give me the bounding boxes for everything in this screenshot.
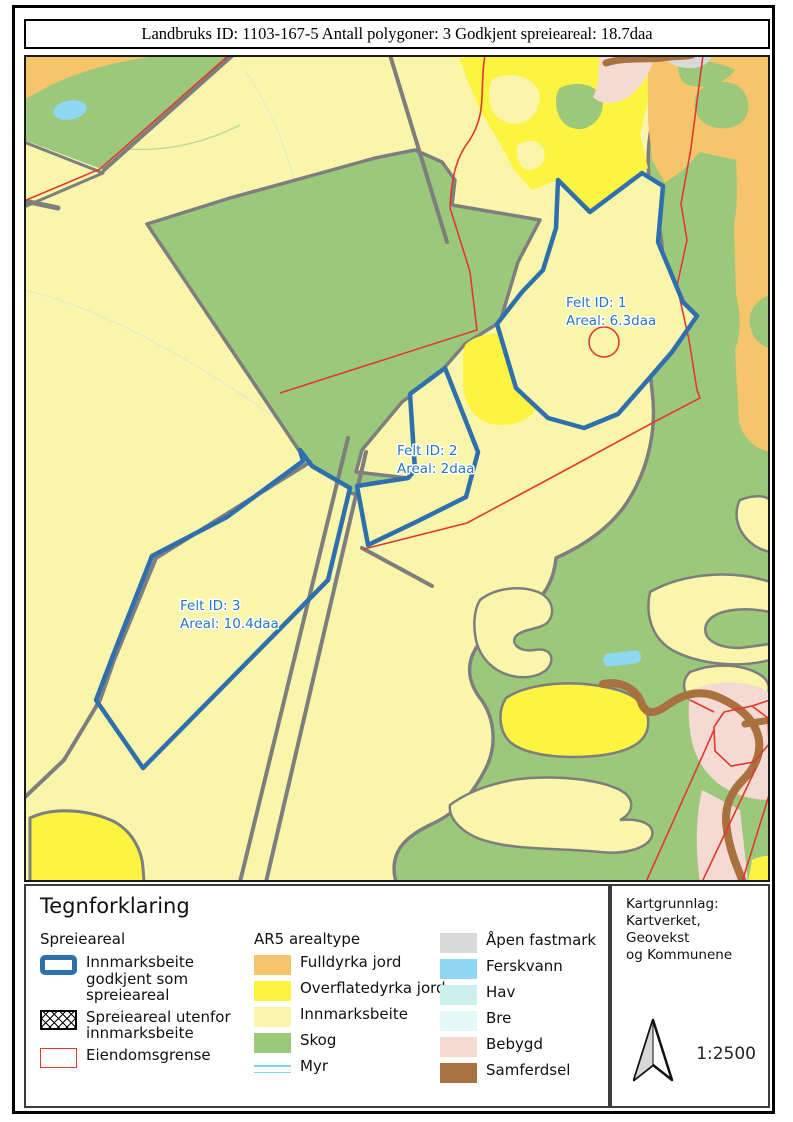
legend-item-overflatedyrka: Overflatedyrka jord bbox=[254, 980, 454, 1001]
map-svg: Felt ID: 1 Areal: 6.3daa Felt ID: 2 Area… bbox=[24, 55, 770, 882]
spreieareal-header: Spreieareal bbox=[40, 930, 255, 948]
map-canvas: Felt ID: 1 Areal: 6.3daa Felt ID: 2 Area… bbox=[24, 55, 770, 882]
map-title-bar: Landbruks ID: 1103-167-5 Antall polygone… bbox=[24, 19, 770, 49]
field-3-label-line2: Areal: 10.4daa bbox=[180, 616, 279, 632]
ferskvann-swatch bbox=[440, 959, 477, 979]
legend-item-fulldyrka: Fulldyrka jord bbox=[254, 954, 454, 975]
yellow-field-bottom-center bbox=[500, 683, 648, 757]
legend-item-innmarksbeite-godkjent: Innmarksbeite godkjent som spreieareal bbox=[40, 954, 255, 1004]
skog-swatch bbox=[254, 1033, 291, 1053]
overflatedyrka-swatch bbox=[254, 981, 291, 1001]
samferdsel-swatch bbox=[440, 1063, 477, 1083]
forest-hole-in-orange-1 bbox=[694, 82, 748, 129]
myr-swatch bbox=[254, 1059, 291, 1079]
field-1-label-line1: Felt ID: 1 bbox=[566, 295, 626, 311]
legend-item-bre: Bre bbox=[440, 1010, 605, 1031]
scale-label: 1:2500 bbox=[696, 1044, 756, 1064]
legend-item-eiendomsgrense: Eiendomsgrense bbox=[40, 1047, 255, 1068]
legend-item-ferskvann: Ferskvann bbox=[440, 958, 605, 979]
legend-item-myr: Myr bbox=[254, 1058, 454, 1079]
legend-item-skog: Skog bbox=[254, 1032, 454, 1053]
legend-column-ar5-2: Åpen fastmark Ferskvann Hav Bre Bebygd S… bbox=[440, 932, 605, 1088]
legend-column-spreieareal: Spreieareal Innmarksbeite godkjent som s… bbox=[40, 930, 255, 1073]
map-source-panel: Kartgrunnlag: Kartverket, Geovekst og Ko… bbox=[610, 884, 770, 1108]
legend-title: Tegnforklaring bbox=[40, 894, 190, 918]
map-report-page: Landbruks ID: 1103-167-5 Antall polygone… bbox=[0, 0, 793, 1122]
legend-item-spreieareal-utenfor: Spreieareal utenfor innmarksbeite bbox=[40, 1009, 255, 1042]
field-2-label-line1: Felt ID: 2 bbox=[397, 443, 457, 459]
innmarksbeite-swatch bbox=[254, 1007, 291, 1027]
legend-panel: Tegnforklaring Spreieareal Innmarksbeite… bbox=[24, 884, 610, 1108]
map-source-text: Kartgrunnlag: Kartverket, Geovekst og Ko… bbox=[626, 896, 768, 964]
hav-swatch bbox=[440, 985, 477, 1005]
field-3-label-line1: Felt ID: 3 bbox=[180, 598, 240, 614]
blue-outline-swatch bbox=[40, 955, 77, 975]
ar5-header: AR5 arealtype bbox=[254, 930, 454, 948]
field-1-label-line2: Areal: 6.3daa bbox=[566, 313, 656, 329]
legend-item-samferdsel: Samferdsel bbox=[440, 1062, 605, 1083]
field-2-label-line2: Areal: 2daa bbox=[397, 461, 474, 477]
apen-fastmark-swatch bbox=[440, 933, 477, 953]
legend-item-innmarksbeite: Innmarksbeite bbox=[254, 1006, 454, 1027]
legend-item-hav: Hav bbox=[440, 984, 605, 1005]
north-arrow-icon bbox=[632, 1018, 674, 1084]
bebygd-swatch bbox=[440, 1037, 477, 1057]
legend-item-apen-fastmark: Åpen fastmark bbox=[440, 932, 605, 953]
map-title: Landbruks ID: 1103-167-5 Antall polygone… bbox=[141, 24, 652, 44]
bre-swatch bbox=[440, 1011, 477, 1031]
crosshatch-swatch bbox=[40, 1010, 77, 1030]
red-outline-swatch bbox=[40, 1048, 77, 1068]
fulldyrka-swatch bbox=[254, 955, 291, 975]
legend-item-bebygd: Bebygd bbox=[440, 1036, 605, 1057]
legend-column-ar5: AR5 arealtype Fulldyrka jord Overflatedy… bbox=[254, 930, 454, 1084]
